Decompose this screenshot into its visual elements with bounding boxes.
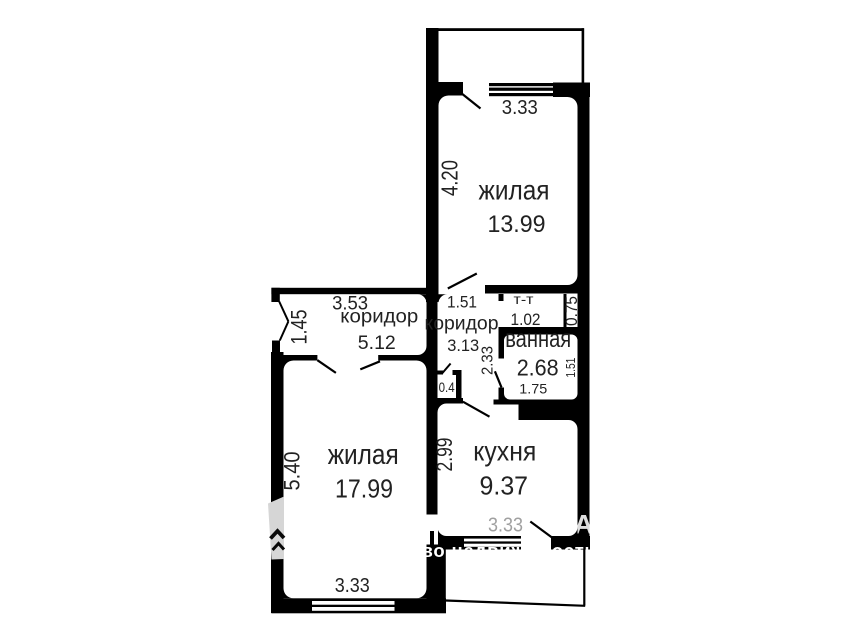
svg-text:0.75: 0.75 bbox=[563, 296, 581, 326]
svg-text:3.33: 3.33 bbox=[335, 575, 370, 597]
svg-text:5.12: 5.12 bbox=[358, 333, 396, 354]
svg-text:1.51: 1.51 bbox=[563, 358, 578, 378]
svg-text:т-т: т-т bbox=[514, 292, 534, 307]
svg-text:2.99: 2.99 bbox=[432, 438, 457, 472]
svg-text:1.51: 1.51 bbox=[447, 294, 477, 312]
svg-text:13.99: 13.99 bbox=[488, 211, 546, 238]
svg-text:кухня: кухня bbox=[473, 435, 536, 466]
svg-text:жилая: жилая bbox=[479, 175, 550, 206]
svg-text:коридор: коридор bbox=[425, 313, 499, 335]
svg-text:17.99: 17.99 bbox=[335, 474, 393, 504]
svg-text:3.33: 3.33 bbox=[488, 515, 523, 537]
svg-text:1.45: 1.45 bbox=[287, 310, 312, 345]
svg-text:2.33: 2.33 bbox=[479, 346, 496, 375]
svg-text:жилая: жилая bbox=[328, 439, 399, 471]
svg-text:4.20: 4.20 bbox=[436, 160, 462, 196]
svg-text:2.68: 2.68 bbox=[517, 354, 559, 380]
svg-text:0.4: 0.4 bbox=[439, 379, 455, 395]
svg-text:во недвижимости: во недвижимости bbox=[422, 540, 597, 561]
svg-text:3.13: 3.13 bbox=[447, 337, 479, 355]
svg-text:1.75: 1.75 bbox=[519, 382, 547, 397]
svg-text:коридор: коридор bbox=[340, 305, 418, 327]
svg-text:3.33: 3.33 bbox=[502, 97, 538, 119]
svg-text:9.37: 9.37 bbox=[480, 473, 529, 501]
svg-text:ванная: ванная bbox=[505, 325, 571, 353]
svg-text:5.40: 5.40 bbox=[280, 452, 305, 491]
